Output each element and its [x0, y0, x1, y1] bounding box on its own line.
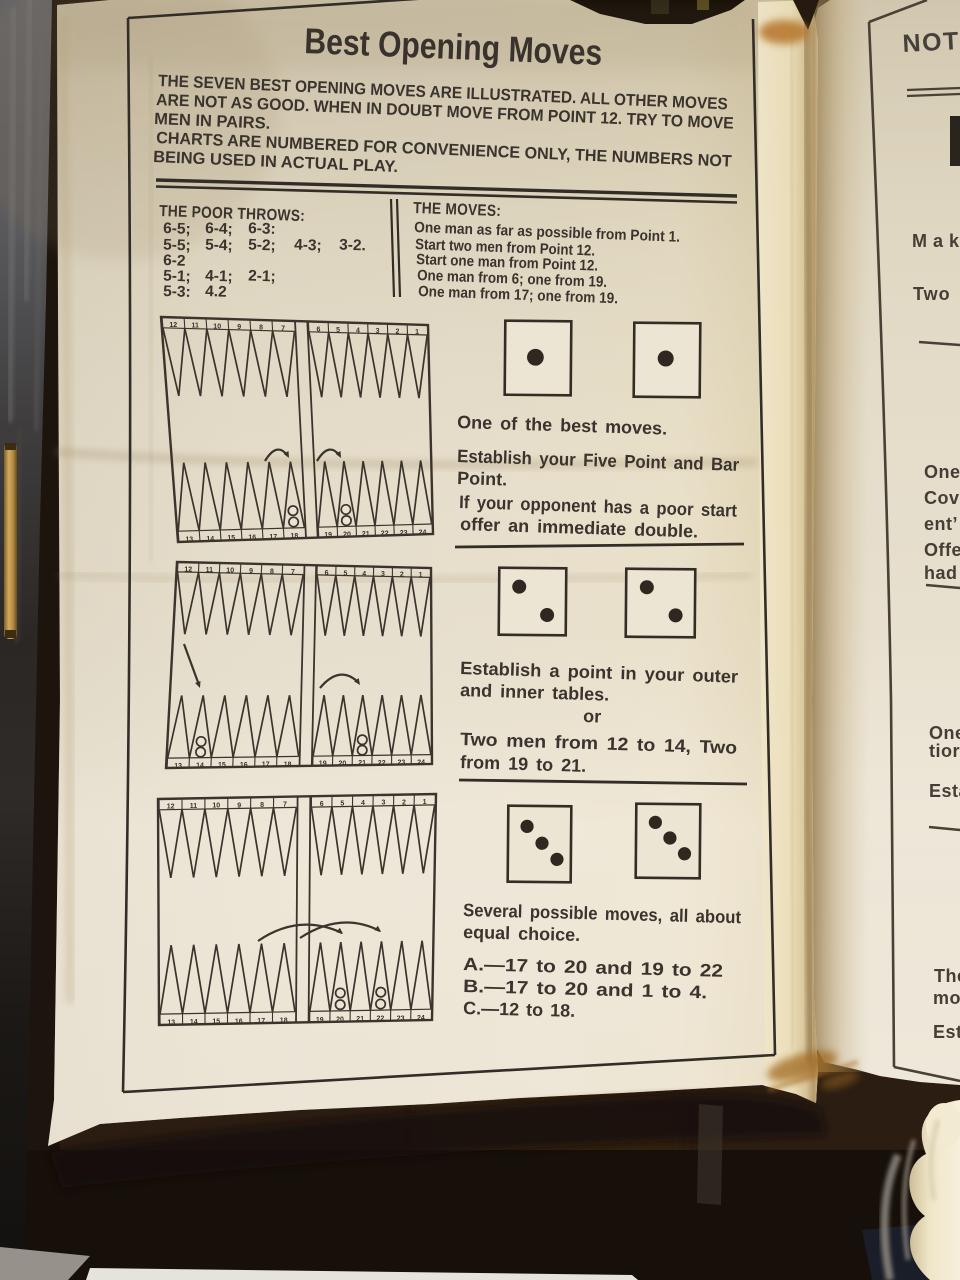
- svg-text:9: 9: [237, 324, 241, 331]
- svg-text:5-3:: 5-3:: [163, 283, 191, 301]
- svg-text:tior: tior: [929, 741, 960, 761]
- svg-text:4.2: 4.2: [205, 283, 227, 301]
- svg-text:5: 5: [343, 570, 347, 577]
- svg-text:18: 18: [291, 533, 299, 540]
- svg-text:Offe: Offe: [924, 540, 960, 560]
- svg-text:13: 13: [167, 1020, 175, 1027]
- svg-text:4: 4: [356, 328, 360, 335]
- svg-text:10: 10: [226, 568, 234, 575]
- svg-text:5-4;: 5-4;: [205, 237, 233, 255]
- svg-text:The: The: [934, 966, 960, 986]
- svg-text:15: 15: [218, 762, 226, 769]
- svg-text:14: 14: [190, 1019, 198, 1026]
- svg-text:6: 6: [320, 801, 324, 808]
- svg-text:THE MOVES:: THE MOVES:: [413, 200, 502, 220]
- svg-text:9: 9: [249, 568, 253, 575]
- svg-text:19: 19: [316, 1017, 324, 1024]
- svg-text:1: 1: [415, 329, 419, 336]
- svg-text:Point.: Point.: [457, 468, 508, 490]
- svg-text:8: 8: [260, 802, 264, 809]
- svg-text:5: 5: [340, 800, 344, 807]
- svg-text:7: 7: [291, 569, 295, 576]
- svg-text:20: 20: [339, 761, 347, 768]
- svg-text:9: 9: [237, 802, 241, 809]
- svg-text:17: 17: [257, 1018, 265, 1025]
- svg-text:6-5;: 6-5;: [163, 220, 191, 238]
- svg-text:21: 21: [362, 531, 370, 538]
- svg-text:12: 12: [169, 322, 177, 329]
- svg-text:18: 18: [280, 1018, 288, 1025]
- svg-text:6-4;: 6-4;: [205, 220, 233, 238]
- svg-text:18: 18: [284, 761, 292, 768]
- svg-text:11: 11: [206, 567, 214, 574]
- svg-text:22: 22: [378, 760, 386, 767]
- svg-text:6: 6: [316, 326, 320, 333]
- svg-text:12: 12: [167, 804, 175, 811]
- svg-text:15: 15: [212, 1019, 220, 1026]
- svg-text:5-2;: 5-2;: [248, 237, 276, 255]
- svg-text:14: 14: [206, 536, 214, 543]
- svg-text:Cove: Cove: [924, 488, 960, 508]
- svg-text:13: 13: [174, 763, 182, 770]
- svg-text:6-3:: 6-3:: [248, 220, 276, 238]
- svg-text:19: 19: [319, 761, 327, 768]
- svg-text:4-3;: 4-3;: [294, 237, 322, 255]
- svg-text:2: 2: [395, 329, 399, 336]
- svg-text:16: 16: [240, 762, 248, 769]
- svg-text:24: 24: [417, 759, 425, 766]
- svg-text:19: 19: [324, 532, 332, 539]
- svg-text:21: 21: [358, 760, 366, 767]
- svg-text:4: 4: [362, 571, 366, 578]
- svg-text:4: 4: [361, 800, 365, 807]
- svg-text:23: 23: [397, 1015, 405, 1022]
- svg-text:5: 5: [336, 327, 340, 334]
- svg-text:16: 16: [248, 535, 256, 542]
- svg-text:NOTE: NOTE: [902, 26, 960, 58]
- svg-text:20: 20: [343, 532, 351, 539]
- svg-text:6: 6: [325, 570, 329, 577]
- svg-text:12: 12: [184, 567, 192, 574]
- svg-text:7: 7: [283, 801, 287, 808]
- svg-text:24: 24: [419, 529, 427, 536]
- svg-text:Est: Est: [933, 1022, 960, 1042]
- svg-text:2: 2: [402, 799, 406, 806]
- svg-text:Mak: Mak: [912, 231, 960, 251]
- svg-text:24: 24: [417, 1015, 425, 1022]
- svg-text:23: 23: [400, 530, 408, 537]
- svg-text:2: 2: [400, 572, 404, 579]
- svg-text:21: 21: [356, 1016, 364, 1023]
- svg-text:3: 3: [381, 571, 385, 578]
- svg-text:16: 16: [235, 1018, 243, 1025]
- svg-text:3: 3: [381, 800, 385, 807]
- svg-text:had: had: [924, 563, 958, 583]
- svg-text:14: 14: [196, 763, 204, 770]
- svg-text:C.—12 to 18.: C.—12 to 18.: [463, 998, 576, 1021]
- svg-text:7: 7: [281, 325, 285, 332]
- svg-text:2-1;: 2-1;: [248, 268, 276, 286]
- svg-text:15: 15: [227, 535, 235, 542]
- svg-text:20: 20: [336, 1017, 344, 1024]
- svg-text:3: 3: [376, 328, 380, 335]
- svg-text:Two: Two: [913, 284, 951, 304]
- svg-text:One: One: [929, 723, 960, 743]
- svg-text:1: 1: [423, 799, 427, 806]
- svg-text:mo: mo: [933, 988, 960, 1008]
- svg-text:13: 13: [185, 536, 193, 543]
- svg-text:One: One: [924, 462, 960, 482]
- svg-text:17: 17: [269, 534, 277, 541]
- svg-text:from 19 to 21.: from 19 to 21.: [460, 752, 587, 776]
- svg-text:11: 11: [191, 323, 199, 330]
- svg-text:1: 1: [419, 572, 423, 579]
- svg-text:Esta: Esta: [929, 781, 960, 801]
- svg-text:23: 23: [398, 760, 406, 767]
- svg-text:8: 8: [270, 569, 274, 576]
- svg-text:17: 17: [262, 762, 270, 769]
- svg-text:11: 11: [190, 803, 198, 810]
- svg-text:22: 22: [381, 531, 389, 538]
- svg-text:3-2.: 3-2.: [339, 237, 366, 255]
- svg-text:or: or: [583, 706, 602, 727]
- svg-text:8: 8: [259, 325, 263, 332]
- svg-text:10: 10: [213, 323, 221, 330]
- svg-text:equal choice.: equal choice.: [463, 922, 581, 945]
- svg-text:22: 22: [377, 1016, 385, 1023]
- svg-text:ent’: ent’: [924, 514, 958, 534]
- svg-text:10: 10: [212, 803, 220, 810]
